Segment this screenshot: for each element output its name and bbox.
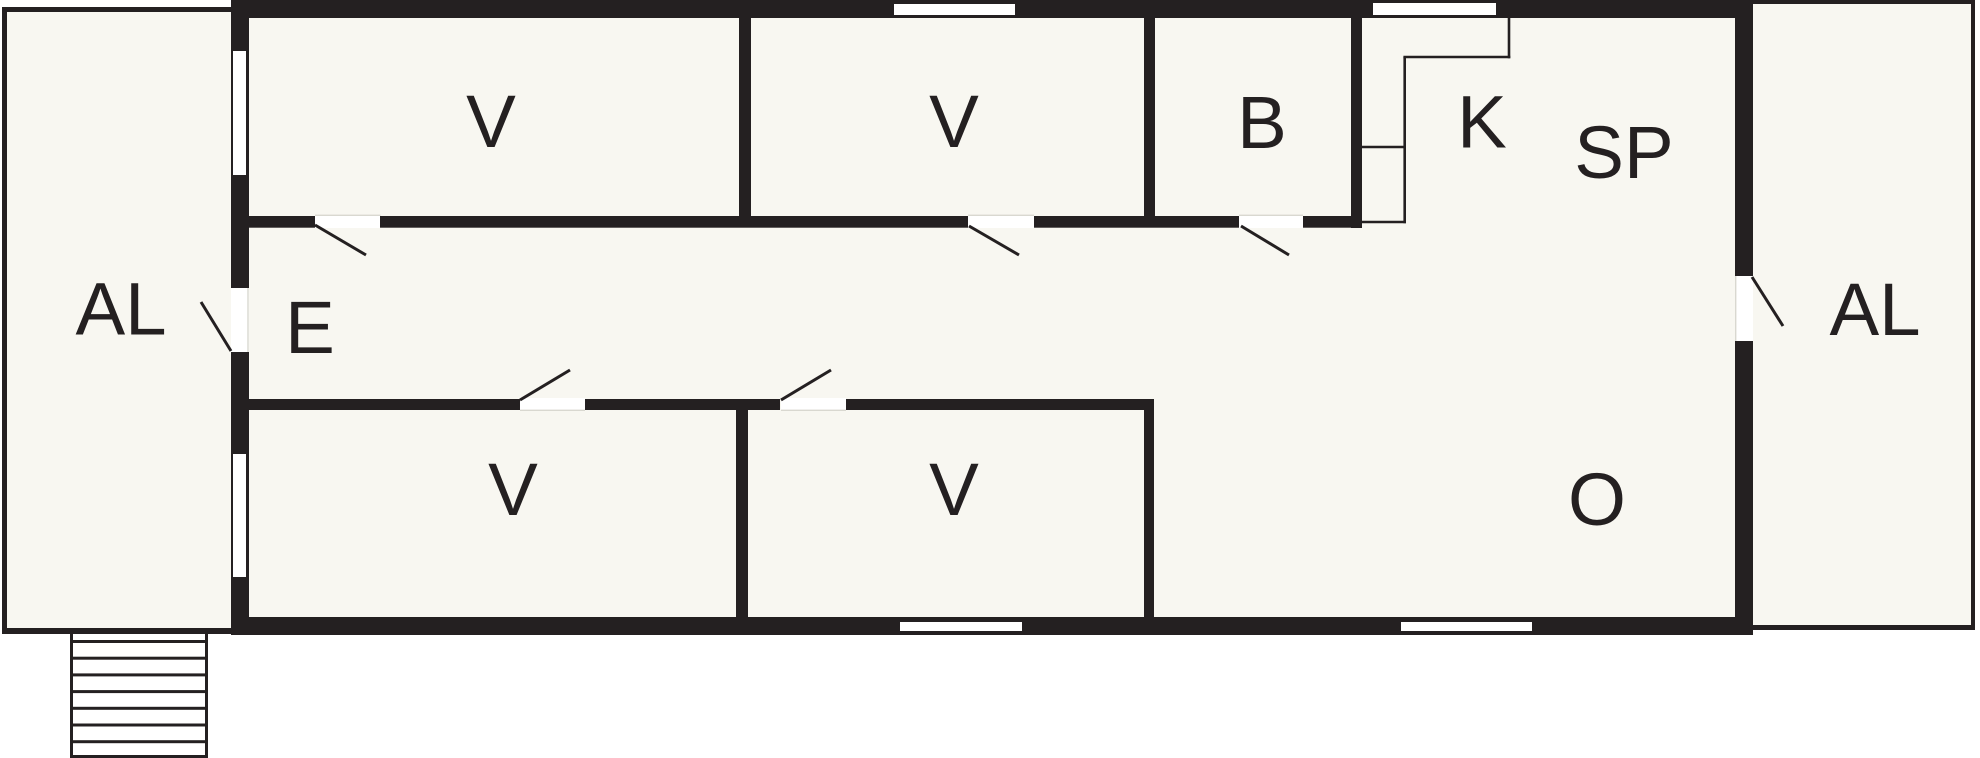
svg-text:E: E [285,286,335,369]
svg-text:B: B [1237,81,1287,164]
svg-text:V: V [929,80,979,163]
svg-text:AL: AL [75,268,166,351]
svg-text:K: K [1457,81,1507,164]
svg-text:V: V [929,448,979,531]
svg-text:AL: AL [1829,268,1920,351]
svg-text:V: V [466,80,516,163]
svg-text:O: O [1568,458,1626,541]
svg-text:SP: SP [1574,111,1673,194]
svg-text:V: V [488,448,538,531]
